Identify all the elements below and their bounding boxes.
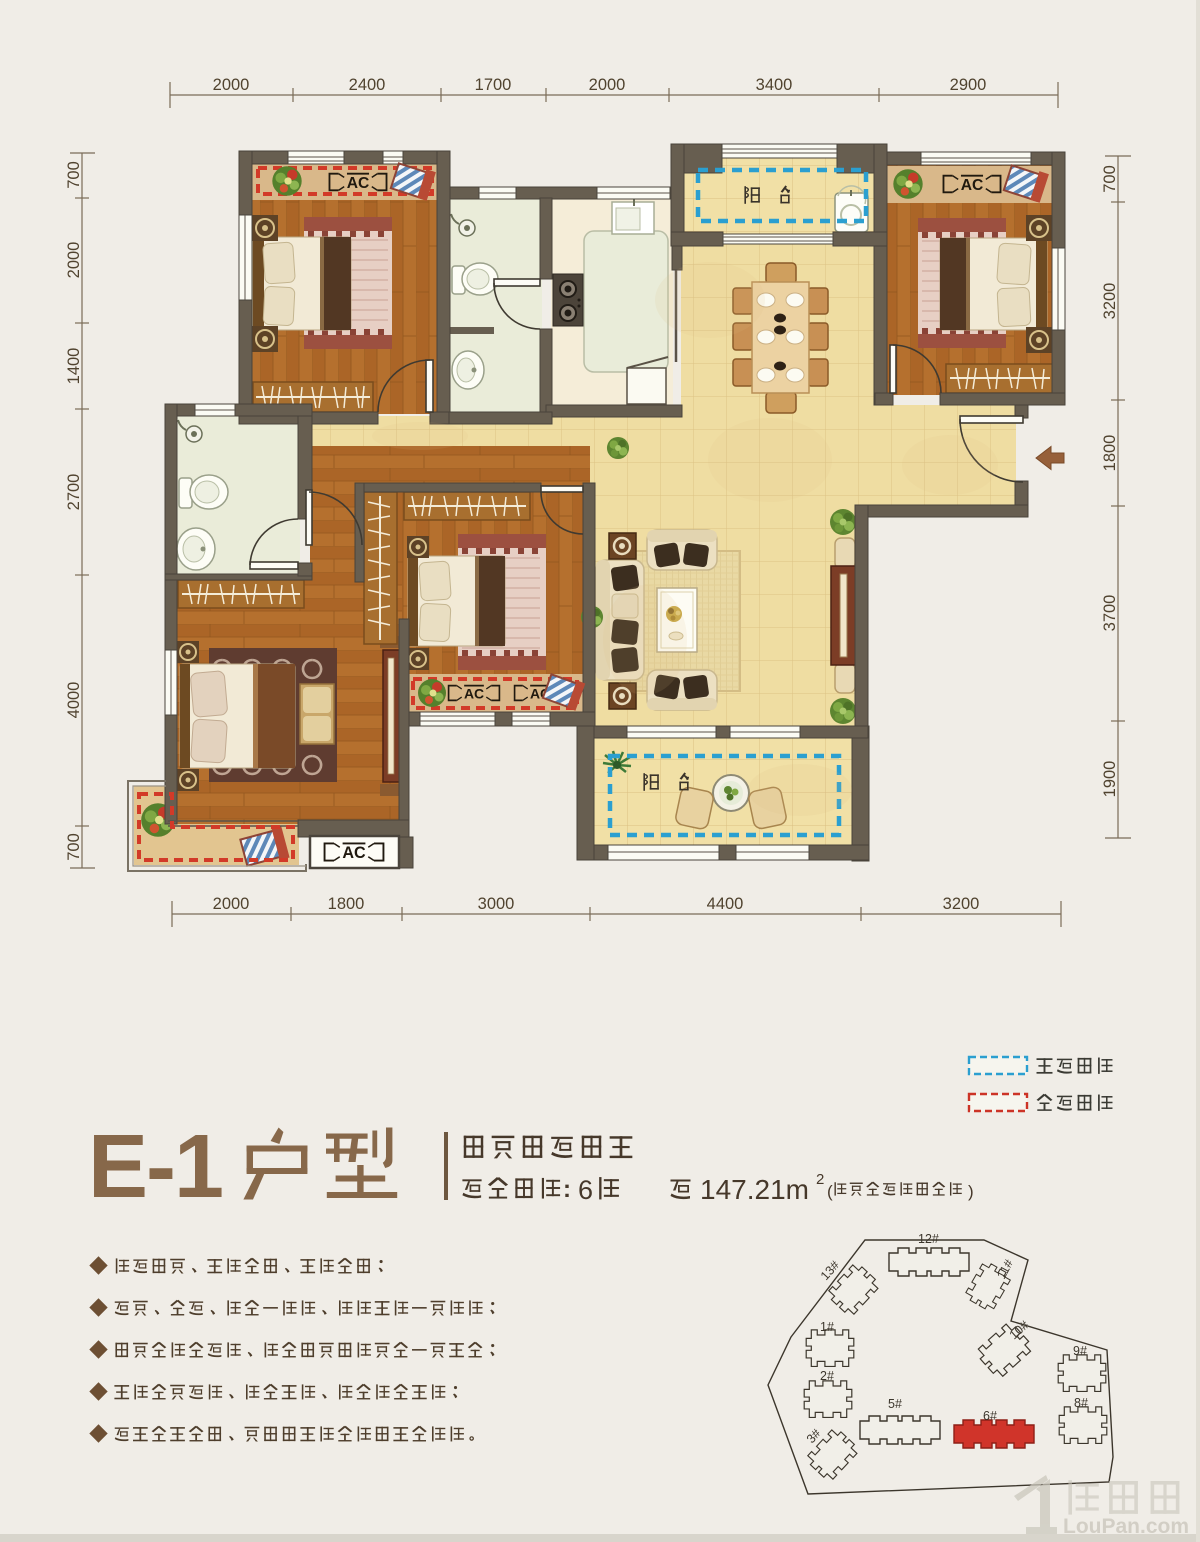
svg-text:1800: 1800 [1101,435,1119,472]
svg-text:2700: 2700 [65,474,83,511]
svg-text:(: ( [827,1182,833,1201]
svg-text:LouPan.com: LouPan.com [1063,1515,1189,1538]
svg-text:2000: 2000 [65,242,83,279]
svg-text:2: 2 [816,1171,824,1188]
svg-text:700: 700 [65,161,83,189]
svg-text:700: 700 [1101,165,1119,193]
svg-text:2900: 2900 [950,76,987,94]
svg-text:8#: 8# [1074,1396,1088,1410]
svg-text:3200: 3200 [1101,283,1119,320]
svg-text:1800: 1800 [328,895,365,913]
svg-text:2000: 2000 [213,895,250,913]
svg-text:3700: 3700 [1101,595,1119,632]
svg-text:2#: 2# [820,1369,834,1383]
svg-text:4400: 4400 [707,895,744,913]
svg-text:5#: 5# [888,1397,902,1411]
svg-text:6#: 6# [983,1409,997,1423]
svg-text:1400: 1400 [65,348,83,385]
svg-text:): ) [968,1182,974,1201]
svg-text:3000: 3000 [478,895,515,913]
svg-text:1900: 1900 [1101,761,1119,798]
svg-text:1#: 1# [820,1320,834,1334]
svg-text:700: 700 [65,833,83,861]
svg-text:6: 6 [578,1175,593,1205]
svg-text:9#: 9# [1073,1344,1087,1358]
svg-text:147.21m: 147.21m [700,1174,809,1205]
svg-text:4000: 4000 [65,682,83,719]
svg-text:12#: 12# [918,1232,939,1246]
svg-text::: : [563,1176,571,1203]
svg-text:2400: 2400 [349,76,386,94]
svg-text:E-1: E-1 [88,1117,222,1217]
svg-text:1700: 1700 [475,76,512,94]
svg-text:2000: 2000 [213,76,250,94]
svg-text:3200: 3200 [943,895,980,913]
svg-text:3400: 3400 [756,76,793,94]
svg-text:2000: 2000 [589,76,626,94]
